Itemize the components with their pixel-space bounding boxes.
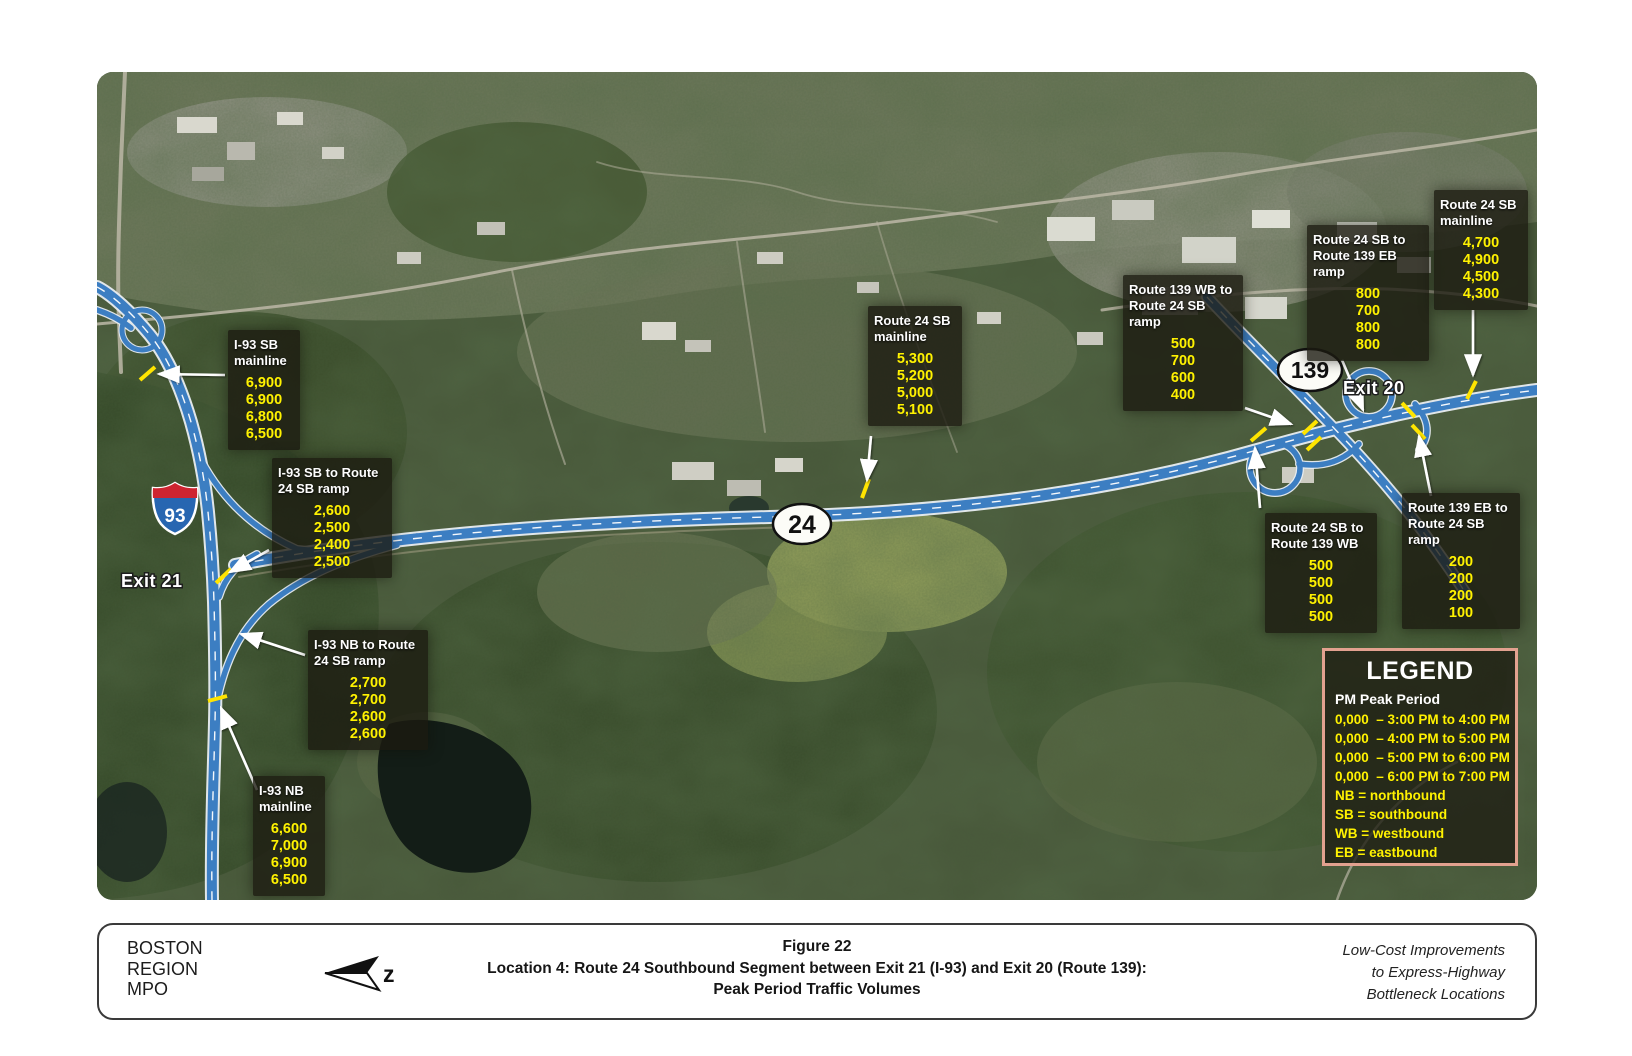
count-value: 2,500	[278, 520, 386, 537]
count-value: 200	[1408, 571, 1514, 588]
count-box-title: I-93 SB to Route 24 SB ramp	[278, 465, 386, 497]
legend-title: LEGEND	[1335, 657, 1505, 686]
count-value: 800	[1313, 320, 1423, 337]
legend-item: EB = eastbound	[1335, 843, 1505, 862]
legend-item: 0,000 – 3:00 PM to 4:00 PM	[1335, 710, 1505, 729]
count-value: 4,300	[1440, 286, 1522, 303]
count-value: 2,600	[278, 503, 386, 520]
legend: LEGEND PM Peak Period 0,000 – 3:00 PM to…	[1322, 648, 1518, 866]
figure-subtitle: Peak Period Traffic Volumes	[99, 979, 1535, 1001]
count-value: 500	[1129, 336, 1237, 353]
count-box-title: Route 24 SB to Route 139 WB	[1271, 520, 1371, 552]
count-value: 6,900	[234, 392, 294, 409]
count-value: 800	[1313, 286, 1423, 303]
legend-item: NB = northbound	[1335, 786, 1505, 805]
count-box-i93-sb-mainline: I-93 SB mainline 6,900 6,900 6,800 6,500	[228, 330, 300, 450]
count-value: 7,000	[259, 838, 319, 855]
count-value: 6,600	[259, 821, 319, 838]
count-value: 600	[1129, 370, 1237, 387]
project-name: Low-Cost Improvements to Express-Highway…	[1342, 940, 1505, 1005]
aerial-map: 93 24 139 Exit 21 Exit 20 I-93 SB mainli…	[97, 72, 1537, 900]
count-value: 200	[1408, 588, 1514, 605]
title-block: BOSTON REGION MPO z Figure 22 Location 4…	[97, 923, 1537, 1020]
count-value: 5,200	[874, 368, 956, 385]
count-value: 6,800	[234, 409, 294, 426]
count-value: 700	[1129, 353, 1237, 370]
count-value: 500	[1271, 575, 1371, 592]
figure-title: Location 4: Route 24 Southbound Segment …	[99, 958, 1535, 980]
count-value: 2,700	[314, 675, 422, 692]
figure-number: Figure 22	[99, 936, 1535, 958]
count-box-title: Route 139 EB to Route 24 SB ramp	[1408, 500, 1514, 548]
count-value: 2,500	[278, 554, 386, 571]
count-box-title: Route 24 SB mainline	[1440, 197, 1522, 229]
count-value: 500	[1271, 592, 1371, 609]
count-value: 4,900	[1440, 252, 1522, 269]
count-value: 5,100	[874, 402, 956, 419]
count-box-rt139-wb-to-rt24-ramp: Route 139 WB to Route 24 SB ramp 500 700…	[1123, 275, 1243, 411]
count-value: 6,500	[234, 426, 294, 443]
pointer-arrow	[159, 374, 225, 375]
count-value: 5,300	[874, 351, 956, 368]
count-box-rt24-sb-to-rt139-wb: Route 24 SB to Route 139 WB 500 500 500 …	[1265, 513, 1377, 633]
count-value: 4,500	[1440, 269, 1522, 286]
count-box-title: I-93 NB mainline	[259, 783, 319, 815]
i93-shield-number: 93	[164, 506, 185, 527]
count-value: 2,600	[314, 709, 422, 726]
legend-item: SB = southbound	[1335, 805, 1505, 824]
count-value: 6,900	[234, 375, 294, 392]
legend-item: 0,000 – 6:00 PM to 7:00 PM	[1335, 767, 1505, 786]
count-box-title: I-93 SB mainline	[234, 337, 294, 369]
count-box-i93-sb-to-rt24-ramp: I-93 SB to Route 24 SB ramp 2,600 2,500 …	[272, 458, 392, 578]
count-value: 400	[1129, 387, 1237, 404]
legend-item: WB = westbound	[1335, 824, 1505, 843]
count-value: 4,700	[1440, 235, 1522, 252]
count-value: 6,500	[259, 872, 319, 889]
count-box-title: Route 139 WB to Route 24 SB ramp	[1129, 282, 1237, 330]
legend-subtitle: PM Peak Period	[1335, 691, 1505, 707]
exit-21-label: Exit 21	[121, 571, 183, 591]
count-value: 100	[1408, 605, 1514, 622]
count-box-i93-nb-mainline: I-93 NB mainline 6,600 7,000 6,900 6,500	[253, 776, 325, 896]
count-box-rt24-sb-mainline-center: Route 24 SB mainline 5,300 5,200 5,000 5…	[868, 306, 962, 426]
legend-item: 0,000 – 5:00 PM to 6:00 PM	[1335, 748, 1505, 767]
count-value: 6,900	[259, 855, 319, 872]
count-value: 2,700	[314, 692, 422, 709]
count-box-i93-nb-to-rt24-ramp: I-93 NB to Route 24 SB ramp 2,700 2,700 …	[308, 630, 428, 750]
count-box-title: I-93 NB to Route 24 SB ramp	[314, 637, 422, 669]
count-value: 800	[1313, 337, 1423, 354]
count-box-rt139-eb-to-rt24-ramp: Route 139 EB to Route 24 SB ramp 200 200…	[1402, 493, 1520, 629]
count-value: 2,400	[278, 537, 386, 554]
count-box-title: Route 24 SB to Route 139 EB ramp	[1313, 232, 1423, 280]
count-value: 2,600	[314, 726, 422, 743]
count-value: 500	[1271, 609, 1371, 626]
count-box-rt24-sb-to-rt139-eb-ramp: Route 24 SB to Route 139 EB ramp 800 700…	[1307, 225, 1429, 361]
count-box-rt24-sb-mainline-east: Route 24 SB mainline 4,700 4,900 4,500 4…	[1434, 190, 1528, 310]
count-value: 200	[1408, 554, 1514, 571]
figure-caption: Figure 22 Location 4: Route 24 Southboun…	[99, 936, 1535, 1001]
count-box-title: Route 24 SB mainline	[874, 313, 956, 345]
count-value: 700	[1313, 303, 1423, 320]
count-value: 5,000	[874, 385, 956, 402]
route-24-shield: 24	[773, 504, 831, 544]
count-value: 500	[1271, 558, 1371, 575]
legend-item: 0,000 – 4:00 PM to 5:00 PM	[1335, 729, 1505, 748]
exit-20-label: Exit 20	[1343, 378, 1405, 398]
route-24-shield-number: 24	[788, 511, 816, 539]
